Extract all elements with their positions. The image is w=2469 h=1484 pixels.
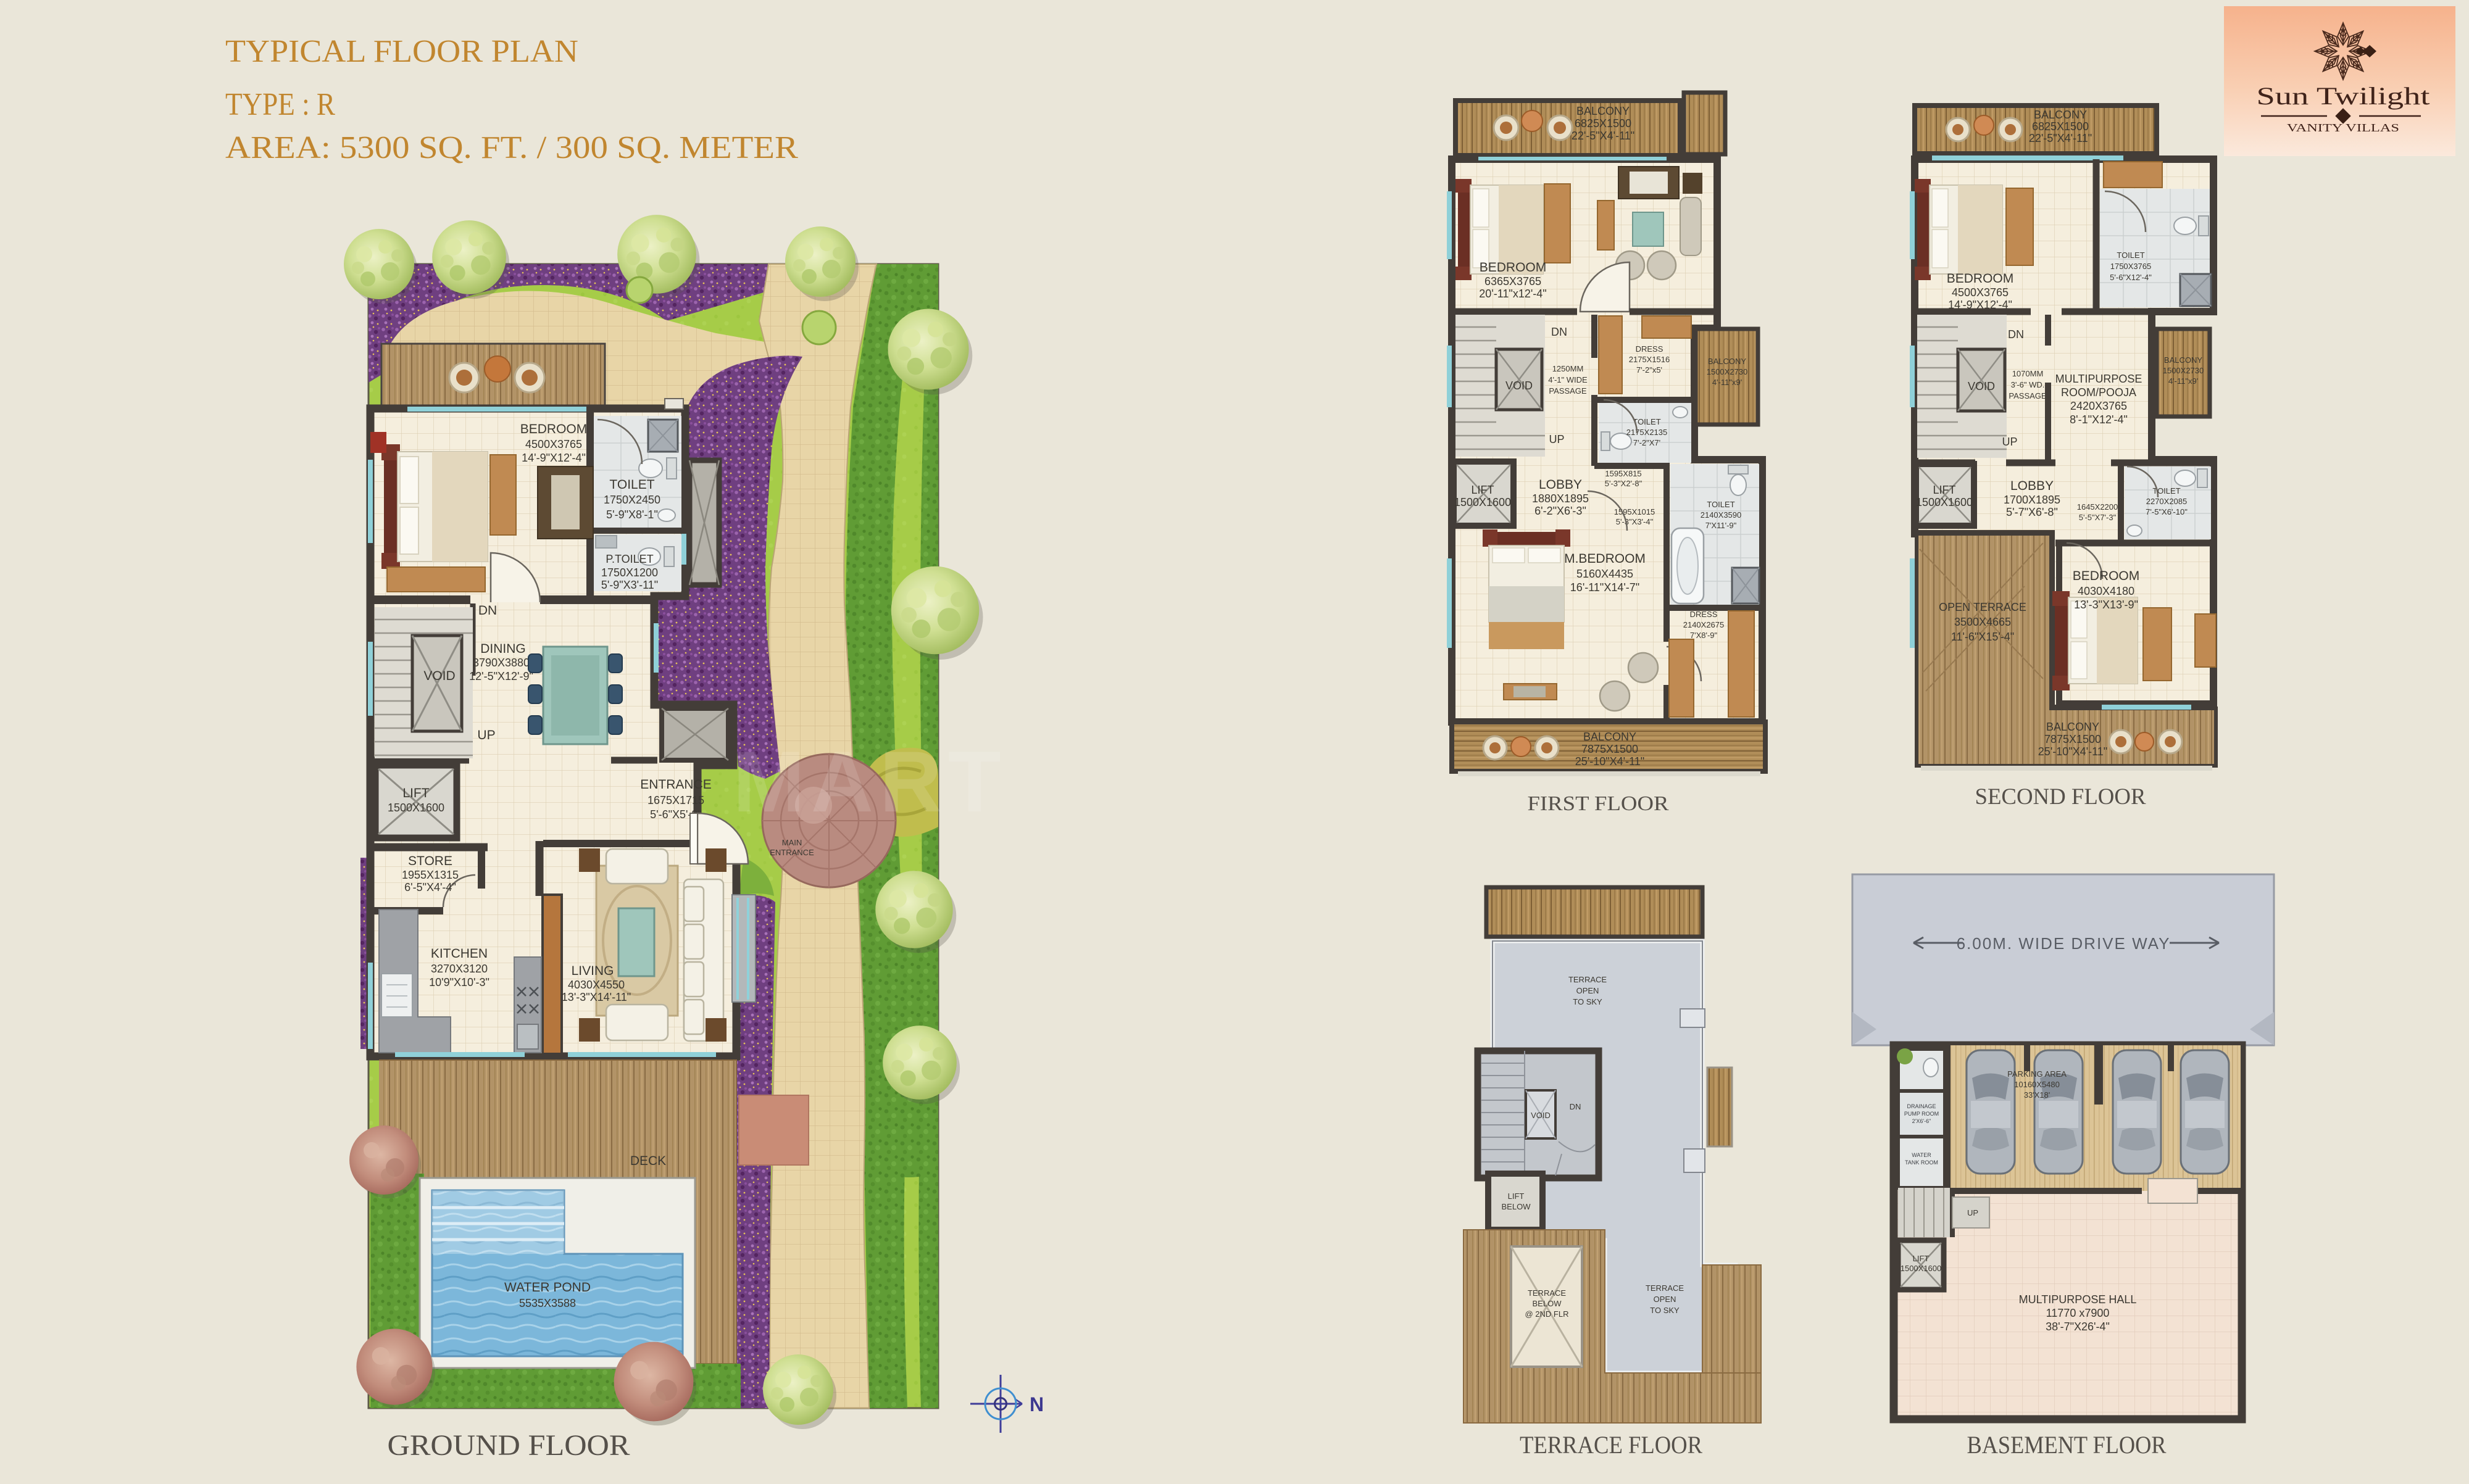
svg-text:1750X2450: 1750X2450 xyxy=(604,494,660,506)
svg-text:LIFT: LIFT xyxy=(1508,1192,1525,1201)
svg-text:TANK ROOM: TANK ROOM xyxy=(1905,1159,1938,1166)
svg-text:1700X1895: 1700X1895 xyxy=(2004,494,2060,506)
svg-text:DN: DN xyxy=(1570,1102,1581,1111)
svg-text:LOBBY: LOBBY xyxy=(2010,479,2054,493)
svg-text:TERRACE: TERRACE xyxy=(1568,975,1607,984)
svg-text:Sun Twilight: Sun Twilight xyxy=(2257,82,2430,110)
svg-text:P.TOILET: P.TOILET xyxy=(606,553,653,565)
svg-text:1500X1600: 1500X1600 xyxy=(388,802,444,814)
svg-text:1500X1600: 1500X1600 xyxy=(1916,496,1973,508)
svg-text:VOID: VOID xyxy=(1505,379,1533,392)
svg-text:WATER: WATER xyxy=(1912,1152,1931,1158)
svg-text:PUMP ROOM: PUMP ROOM xyxy=(1904,1111,1939,1117)
svg-text:OPEN: OPEN xyxy=(1576,986,1599,995)
svg-text:1500X2730: 1500X2730 xyxy=(1707,367,1748,376)
svg-text:BEDROOM: BEDROOM xyxy=(2073,569,2140,583)
svg-text:UP: UP xyxy=(1549,433,1564,446)
svg-text:1250MM: 1250MM xyxy=(1552,364,1584,373)
svg-text:M.BEDROOM: M.BEDROOM xyxy=(1564,552,1646,566)
svg-text:BEDROOM: BEDROOM xyxy=(1480,260,1547,275)
svg-text:5'-6"X12'-4": 5'-6"X12'-4" xyxy=(2110,273,2152,282)
svg-text:TOILET: TOILET xyxy=(1633,417,1660,426)
svg-text:7875X1500: 7875X1500 xyxy=(1581,743,1638,755)
svg-text:5'-5"X7'-3": 5'-5"X7'-3" xyxy=(2079,513,2117,522)
svg-text:GROUND FLOOR: GROUND FLOOR xyxy=(388,1429,630,1462)
svg-text:5535X3588: 5535X3588 xyxy=(519,1297,576,1309)
svg-text:DRESS: DRESS xyxy=(1690,610,1718,619)
svg-text:11'-6"X15'-4": 11'-6"X15'-4" xyxy=(1951,631,2014,643)
svg-text:ENTRANCE: ENTRANCE xyxy=(640,777,712,792)
svg-text:38'-7"X26'-4": 38'-7"X26'-4" xyxy=(2046,1320,2110,1333)
svg-text:1675X1715: 1675X1715 xyxy=(647,794,704,806)
svg-text:VOID: VOID xyxy=(1968,380,1995,392)
svg-text:2175X1516: 2175X1516 xyxy=(1629,355,1670,364)
svg-text:FIRST FLOOR: FIRST FLOOR xyxy=(1528,792,1669,815)
svg-text:DN: DN xyxy=(1551,326,1567,338)
svg-text:TYPICAL FLOOR PLAN: TYPICAL FLOOR PLAN xyxy=(225,34,578,69)
svg-text:8'-1"X12'-4": 8'-1"X12'-4" xyxy=(2070,413,2128,426)
svg-text:25'-10"X4'-11": 25'-10"X4'-11" xyxy=(2038,745,2107,758)
svg-text:1880X1895: 1880X1895 xyxy=(1532,492,1589,505)
svg-text:TYPE : R: TYPE : R xyxy=(225,87,335,122)
svg-text:TOILET: TOILET xyxy=(2117,251,2144,260)
svg-text:1500X2730: 1500X2730 xyxy=(2163,366,2204,375)
svg-text:UP: UP xyxy=(477,728,495,742)
svg-text:3790X3880: 3790X3880 xyxy=(473,657,530,669)
svg-text:DRAINAGE: DRAINAGE xyxy=(1907,1103,1936,1109)
svg-text:2140X3590: 2140X3590 xyxy=(1701,510,1742,520)
svg-text:5'-7"X6'-8": 5'-7"X6'-8" xyxy=(2006,506,2058,518)
svg-text:TOILET: TOILET xyxy=(609,478,654,492)
svg-text:PARKING AREA: PARKING AREA xyxy=(2007,1069,2067,1079)
svg-text:6825X1500: 6825X1500 xyxy=(1575,117,1631,130)
svg-text:ROOM/POOJA: ROOM/POOJA xyxy=(2061,386,2136,399)
svg-text:10'9"X10'-3": 10'9"X10'-3" xyxy=(429,976,489,989)
svg-text:7'X8'-9": 7'X8'-9" xyxy=(1690,631,1718,640)
svg-text:BASEMENT FLOOR: BASEMENT FLOOR xyxy=(1967,1431,2167,1459)
svg-text:LIFT: LIFT xyxy=(1471,484,1494,496)
svg-text:22'-5"X4'-11": 22'-5"X4'-11" xyxy=(1572,130,1634,142)
svg-text:VOID: VOID xyxy=(423,669,455,683)
svg-text:BELOW: BELOW xyxy=(1533,1299,1562,1308)
svg-text:11770 x7900: 11770 x7900 xyxy=(2046,1307,2110,1319)
svg-text:1500X1600: 1500X1600 xyxy=(1901,1264,1942,1273)
svg-text:WATER POND: WATER POND xyxy=(504,1280,591,1295)
svg-text:TOILET: TOILET xyxy=(1707,500,1734,509)
svg-text:DECK: DECK xyxy=(630,1154,666,1168)
svg-text:TERRACE: TERRACE xyxy=(1646,1283,1684,1293)
svg-text:2140X2675: 2140X2675 xyxy=(1683,620,1725,629)
svg-text:7'-2"X7': 7'-2"X7' xyxy=(1633,438,1660,447)
svg-text:6.00M. WIDE DRIVE WAY: 6.00M. WIDE DRIVE WAY xyxy=(1957,934,2171,953)
svg-text:BEDROOM: BEDROOM xyxy=(1947,272,2014,286)
svg-text:13'-3"X14'-11": 13'-3"X14'-11" xyxy=(562,991,631,1003)
svg-text:DN: DN xyxy=(2008,328,2024,341)
svg-text:5'-3"X2'-8": 5'-3"X2'-8" xyxy=(1605,479,1643,488)
svg-text:LIFT: LIFT xyxy=(1933,484,1955,496)
svg-text:1645X2200: 1645X2200 xyxy=(2077,502,2118,512)
svg-text:TO SKY: TO SKY xyxy=(1650,1306,1680,1315)
svg-text:3500X4665: 3500X4665 xyxy=(1954,616,2011,628)
svg-text:STORE: STORE xyxy=(408,854,452,868)
svg-text:5'-3"X3'-4": 5'-3"X3'-4" xyxy=(1616,517,1654,526)
svg-text:BALCONY: BALCONY xyxy=(1583,731,1636,743)
svg-text:LIVING: LIVING xyxy=(572,964,614,978)
svg-text:LIFT: LIFT xyxy=(402,786,429,800)
svg-text:LIFT: LIFT xyxy=(1913,1254,1930,1263)
svg-text:BELOW: BELOW xyxy=(1502,1202,1531,1211)
svg-text:MAIN: MAIN xyxy=(782,838,802,847)
svg-text:5160X4435: 5160X4435 xyxy=(1576,568,1633,580)
svg-text:12'-5"X12'-9": 12'-5"X12'-9" xyxy=(469,670,533,682)
svg-text:BALCONY: BALCONY xyxy=(2046,721,2099,733)
svg-text:N: N xyxy=(1030,1393,1044,1416)
svg-text:33'X18': 33'X18' xyxy=(2024,1090,2051,1100)
svg-text:4030X4180: 4030X4180 xyxy=(2078,585,2134,597)
svg-text:PASSAGE: PASSAGE xyxy=(2009,391,2047,400)
svg-text:2'X6'-6": 2'X6'-6" xyxy=(1912,1118,1931,1124)
svg-text:6365X3765: 6365X3765 xyxy=(1484,275,1541,288)
svg-text:4500X3765: 4500X3765 xyxy=(1952,286,2009,299)
svg-text:DN: DN xyxy=(478,603,497,618)
svg-text:1955X1315: 1955X1315 xyxy=(402,869,459,881)
svg-text:BALCONY: BALCONY xyxy=(2034,109,2087,121)
svg-text:4500X3765: 4500X3765 xyxy=(525,438,582,450)
svg-text:2175X2135: 2175X2135 xyxy=(1626,428,1668,437)
svg-text:BALCONY: BALCONY xyxy=(1708,357,1746,366)
svg-text:OPEN TERRACE: OPEN TERRACE xyxy=(1939,601,2026,613)
svg-text:PASSAGE: PASSAGE xyxy=(1549,386,1587,396)
svg-text:14'-9"X12'-4": 14'-9"X12'-4" xyxy=(522,452,586,464)
svg-text:10160X5480: 10160X5480 xyxy=(2014,1080,2060,1089)
svg-text:6'-2"X6'-3": 6'-2"X6'-3" xyxy=(1534,505,1586,517)
svg-text:DRESS: DRESS xyxy=(1636,344,1663,354)
svg-text:TERRACE: TERRACE xyxy=(1528,1288,1566,1298)
svg-text:2420X3765: 2420X3765 xyxy=(2070,400,2127,412)
svg-text:4'-11"x9': 4'-11"x9' xyxy=(2168,376,2198,386)
svg-text:BALCONY: BALCONY xyxy=(2164,355,2202,365)
svg-text:MULTIPURPOSE: MULTIPURPOSE xyxy=(2055,373,2142,385)
svg-text:3'-6" WD.: 3'-6" WD. xyxy=(2011,380,2045,389)
svg-text:22'-5"X4'-11": 22'-5"X4'-11" xyxy=(2029,132,2092,144)
svg-text:UP: UP xyxy=(1967,1208,1978,1217)
svg-text:BEDROOM: BEDROOM xyxy=(520,422,588,436)
svg-text:BALCONY: BALCONY xyxy=(1576,105,1630,117)
svg-text:SECOND FLOOR: SECOND FLOOR xyxy=(1975,784,2146,810)
svg-text:1750X1200: 1750X1200 xyxy=(601,566,658,579)
svg-text:20'-11"x12'-4": 20'-11"x12'-4" xyxy=(1479,288,1546,300)
svg-text:VOID: VOID xyxy=(1531,1111,1551,1120)
svg-text:25'-10"X4'-11": 25'-10"X4'-11" xyxy=(1575,755,1644,768)
svg-text:LOBBY: LOBBY xyxy=(1539,478,1582,492)
svg-text:16'-11"X14'-7": 16'-11"X14'-7" xyxy=(1570,581,1639,594)
svg-text:@ 2ND FLR: @ 2ND FLR xyxy=(1525,1309,1569,1319)
svg-text:TO SKY: TO SKY xyxy=(1573,997,1602,1006)
svg-text:6'-5"X4'-4": 6'-5"X4'-4" xyxy=(404,881,456,893)
svg-text:7'-2"x5': 7'-2"x5' xyxy=(1636,365,1662,375)
svg-text:MULTIPURPOSE HALL: MULTIPURPOSE HALL xyxy=(2019,1293,2137,1306)
svg-text:TERRACE FLOOR: TERRACE FLOOR xyxy=(1520,1431,1702,1459)
svg-text:AREA: 5300 SQ. FT. / 300 SQ. M: AREA: 5300 SQ. FT. / 300 SQ. METER xyxy=(225,130,798,165)
svg-text:1500X1600: 1500X1600 xyxy=(1454,496,1511,508)
svg-text:VANITY VILLAS: VANITY VILLAS xyxy=(2287,122,2399,134)
svg-text:4'-1" WIDE: 4'-1" WIDE xyxy=(1548,375,1588,384)
svg-text:OPEN: OPEN xyxy=(1654,1295,1676,1304)
svg-text:4030X4550: 4030X4550 xyxy=(568,979,625,991)
svg-text:1750X3765: 1750X3765 xyxy=(2110,262,2152,271)
svg-text:1595X815: 1595X815 xyxy=(1605,469,1641,478)
svg-text:5'-9"X8'-1": 5'-9"X8'-1" xyxy=(606,508,658,521)
svg-text:ENTRANCE: ENTRANCE xyxy=(770,848,814,857)
svg-text:DINING: DINING xyxy=(480,642,526,656)
svg-text:7875X1500: 7875X1500 xyxy=(2044,733,2101,745)
svg-text:13'-3"X13'-9": 13'-3"X13'-9" xyxy=(2074,599,2138,611)
svg-text:6825X1500: 6825X1500 xyxy=(2032,120,2089,133)
svg-text:5'-9"X3'-11": 5'-9"X3'-11" xyxy=(601,579,658,591)
svg-text:1070MM: 1070MM xyxy=(2012,369,2044,378)
svg-text:KITCHEN: KITCHEN xyxy=(431,947,488,961)
svg-text:2270X2085: 2270X2085 xyxy=(2146,497,2188,506)
svg-text:7'X11'-9": 7'X11'-9" xyxy=(1705,521,1737,530)
svg-text:7'-5"X6'-10": 7'-5"X6'-10" xyxy=(2146,507,2188,516)
svg-text:3270X3120: 3270X3120 xyxy=(431,963,488,975)
svg-text:UP: UP xyxy=(2002,436,2017,448)
svg-text:4'-11"x9': 4'-11"x9' xyxy=(1712,378,1742,387)
